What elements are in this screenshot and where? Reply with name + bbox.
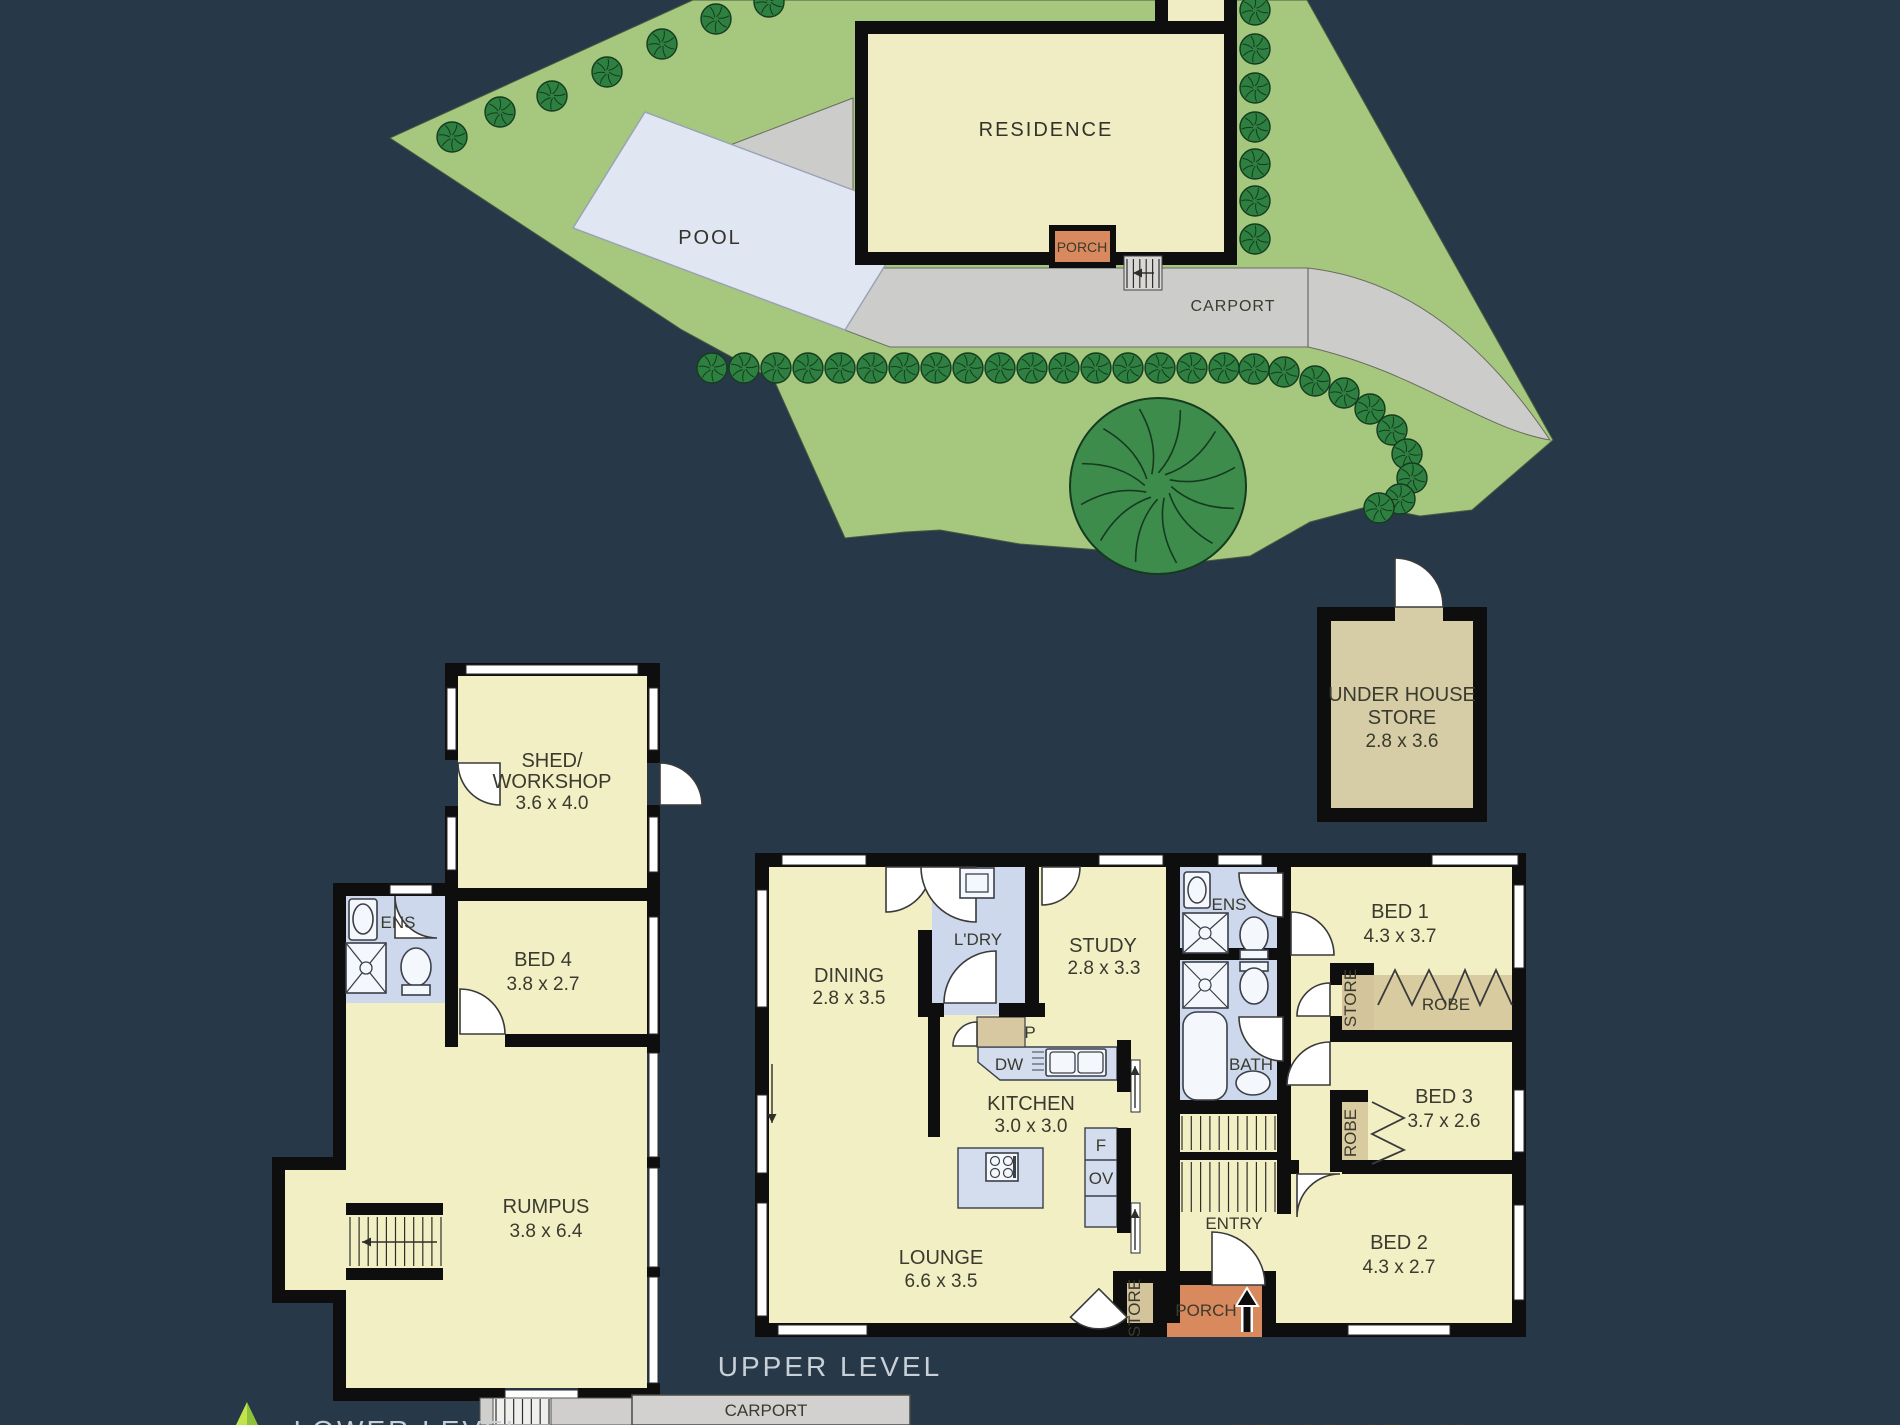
tree-icon [1240, 186, 1270, 216]
wall [272, 1290, 346, 1303]
toilet-tank [1240, 950, 1268, 959]
tree-icon [889, 353, 919, 383]
floorplan-page: RESIDENCE POOL PORCH CARPORT UNDER HOUSE… [0, 0, 1900, 1425]
wall [1180, 1152, 1277, 1160]
wall [505, 1034, 660, 1047]
wall [1330, 1030, 1512, 1042]
wall [333, 883, 346, 1170]
shower-drain [1199, 979, 1211, 991]
robe1-label: ROBE [1422, 995, 1470, 1014]
dining-label: DINING [814, 965, 884, 987]
tree-icon [1364, 493, 1394, 523]
door-gap [1395, 607, 1443, 622]
tree-icon [1240, 149, 1270, 179]
kitchen-sink [1046, 1049, 1106, 1076]
wall [1155, 0, 1168, 21]
window [782, 855, 866, 865]
wall [333, 1290, 346, 1401]
wall [346, 1268, 443, 1280]
wall [1330, 1090, 1368, 1102]
cooktop-knobs [1013, 1156, 1016, 1178]
wall [647, 1157, 660, 1168]
bed1-label: BED 1 [1371, 901, 1429, 923]
dishwasher-label: DW [995, 1055, 1023, 1074]
wall [1117, 1128, 1131, 1233]
oven-label: OV [1089, 1169, 1114, 1188]
wall [445, 901, 458, 1034]
lounge-dims: 6.6 x 3.5 [905, 1271, 978, 1292]
logo-icon [247, 1402, 258, 1425]
wall [647, 1267, 660, 1277]
rumpus-room [346, 1003, 647, 1388]
under-house-store: UNDER HOUSE STORE 2.8 x 3.6 [1317, 558, 1487, 822]
wall [918, 1003, 944, 1017]
wall [445, 1034, 458, 1047]
dining-dims: 2.8 x 3.5 [813, 988, 886, 1009]
uhs-label-2: STORE [1368, 707, 1437, 729]
tree-icon [1177, 353, 1207, 383]
rumpus-label: RUMPUS [503, 1196, 590, 1218]
tree-icon [1240, 224, 1270, 254]
toilet-tank [402, 985, 430, 995]
toilet [1240, 917, 1268, 953]
stair-nook [285, 1170, 346, 1290]
site-upper-stub [1168, 0, 1224, 21]
pantry [977, 1017, 1025, 1047]
ens-lower-label: ENS [381, 913, 416, 932]
window [649, 1053, 658, 1157]
bed2-label: BED 2 [1370, 1232, 1428, 1254]
tree-icon [1329, 378, 1359, 408]
study-label: STUDY [1069, 935, 1137, 957]
window [757, 1203, 767, 1316]
upper-level-plan: DINING 2.8 x 3.5 L'DRY STUDY 2.8 x 3.3 P… [755, 853, 1526, 1345]
toilet [1240, 968, 1268, 1004]
tree-icon [1269, 357, 1299, 387]
tree-icon [697, 353, 727, 383]
tree-icon [825, 353, 855, 383]
bed1-dims: 4.3 x 3.7 [1364, 926, 1437, 947]
window [447, 688, 456, 750]
site-pool-label: POOL [678, 227, 742, 249]
floorplan-canvas: RESIDENCE POOL PORCH CARPORT UNDER HOUSE… [0, 0, 1900, 1425]
bed3-dims: 3.7 x 2.6 [1408, 1111, 1481, 1132]
store-hall-label: STORE [1341, 969, 1360, 1027]
site-plan: RESIDENCE POOL PORCH CARPORT [390, 0, 1553, 564]
robe3-label: ROBE [1341, 1109, 1360, 1157]
wall [346, 1203, 443, 1215]
tree-icon [437, 122, 467, 152]
tree-icon [1209, 353, 1239, 383]
tree-icon [1300, 366, 1330, 396]
site-porch-label: PORCH [1057, 239, 1108, 255]
window [1432, 855, 1518, 865]
bed4-label: BED 4 [514, 949, 572, 971]
tree-icon [953, 353, 983, 383]
window [1218, 855, 1262, 865]
window [1514, 885, 1524, 968]
wall [272, 1157, 285, 1303]
tree-icon [701, 4, 731, 34]
tree-icon [1239, 354, 1269, 384]
tree-icon [793, 353, 823, 383]
site-carport-label: CARPORT [1191, 298, 1276, 315]
window [1099, 855, 1163, 865]
tree-icon [1081, 353, 1111, 383]
bed3-label: BED 3 [1415, 1086, 1473, 1108]
shed-dims: 3.6 x 4.0 [516, 793, 589, 814]
tree-icon [921, 353, 951, 383]
tree-icon [1145, 353, 1175, 383]
shed-label-1: SHED/ [521, 750, 583, 772]
shower-drain [360, 962, 372, 974]
wall [647, 1034, 660, 1053]
window [466, 665, 638, 674]
laundry-sink [960, 868, 994, 898]
wall [1117, 1040, 1131, 1092]
rumpus-dims: 3.8 x 6.4 [510, 1221, 583, 1242]
door-arc [1395, 558, 1443, 607]
door-arc [660, 763, 702, 805]
window [649, 1277, 658, 1383]
tree-icon [1240, 0, 1270, 25]
tree-icon [1017, 353, 1047, 383]
window [447, 817, 456, 870]
window [778, 1325, 867, 1335]
wall [999, 1003, 1045, 1017]
bathtub [1183, 1012, 1227, 1100]
fridge-label: F [1096, 1136, 1106, 1155]
wall [1166, 867, 1180, 1323]
wall [445, 888, 660, 901]
tree-icon [729, 353, 759, 383]
tree-icon [647, 29, 677, 59]
tree-icon [761, 353, 791, 383]
tree-icon [1070, 398, 1246, 574]
pantry-label: P [1024, 1023, 1035, 1042]
window [1514, 1205, 1524, 1300]
wall [1180, 1100, 1277, 1114]
tree-icon [537, 81, 567, 111]
bath-label: BATH [1229, 1055, 1273, 1074]
wall [333, 1388, 505, 1401]
window [757, 1095, 767, 1173]
window [649, 917, 658, 1034]
footer-residence-label: RESIDENCE [1232, 1418, 1402, 1425]
tree-icon [1049, 353, 1079, 383]
wall [1025, 867, 1039, 1017]
study-dims: 2.8 x 3.3 [1068, 958, 1141, 979]
ens-upper-label: ENS [1212, 895, 1247, 914]
window [649, 1168, 658, 1267]
tree-icon [485, 97, 515, 127]
kitchen-dims: 3.0 x 3.0 [995, 1116, 1068, 1137]
tree-icon [985, 353, 1015, 383]
tree-icon [1240, 112, 1270, 142]
upper-level-title: UPPER LEVEL [718, 1351, 942, 1382]
window [390, 885, 432, 894]
tree-icon [857, 353, 887, 383]
kitchen-label: KITCHEN [987, 1093, 1075, 1115]
lounge-label: LOUNGE [899, 1247, 983, 1269]
store-lounge-label: STORE [1125, 1279, 1144, 1337]
lower-level-title: LOWER LEVEL [294, 1415, 525, 1425]
wall [1224, 0, 1237, 21]
wall [928, 1017, 940, 1137]
entry-label: ENTRY [1205, 1214, 1262, 1233]
wall [1342, 1160, 1512, 1174]
wall [1277, 1114, 1291, 1214]
window [649, 688, 658, 750]
tree-icon [592, 57, 622, 87]
laundry-label: L'DRY [954, 930, 1002, 949]
shower-drain [1199, 927, 1211, 939]
site-residence-label: RESIDENCE [979, 119, 1114, 141]
logo-icon [236, 1402, 247, 1425]
window [1348, 1325, 1450, 1335]
toilet [401, 948, 431, 986]
tree-icon [1240, 73, 1270, 103]
site-residence [868, 34, 1224, 252]
window [757, 890, 767, 1007]
bed2-dims: 4.3 x 2.7 [1363, 1257, 1436, 1278]
uhs-label-1: UNDER HOUSE [1328, 684, 1476, 706]
wall [1291, 1160, 1299, 1174]
shed-label-2: WORKSHOP [493, 771, 612, 793]
window [1514, 1090, 1524, 1152]
lower-carport-label: CARPORT [725, 1401, 808, 1420]
basin-bowl [1236, 1071, 1270, 1095]
uhs-dims: 2.8 x 3.6 [1366, 731, 1439, 752]
tree-icon [1240, 34, 1270, 64]
window [649, 817, 658, 872]
footer-area: 186 m² [1424, 1418, 1505, 1425]
upper-porch-label: PORCH [1175, 1301, 1236, 1320]
bed4-dims: 3.8 x 2.7 [507, 974, 580, 995]
tree-icon [1113, 353, 1143, 383]
